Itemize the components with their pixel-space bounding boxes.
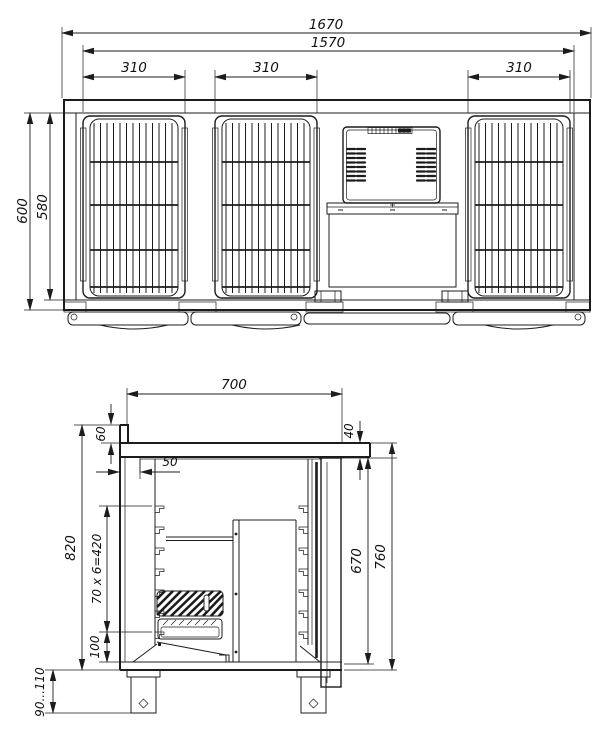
- side-section-view: [120, 425, 370, 713]
- shelf-slide: [166, 537, 233, 541]
- grille-door-left: [81, 116, 188, 298]
- dim-backsplash-height: 60: [94, 426, 108, 442]
- door-right-vertical-bars: [479, 123, 557, 293]
- dim-front-height: 760: [373, 544, 389, 570]
- louver-stack-right: [417, 149, 435, 181]
- dim-door-left: 310: [121, 60, 147, 76]
- dim-overall-width: 1670: [309, 17, 343, 33]
- door-middle-horizontal-wires: [222, 162, 310, 287]
- door-left-horizontal-wires: [90, 162, 178, 287]
- evaporator-fins: [157, 591, 223, 616]
- refrigerated-counter-drawing: 1670 1570 310 310 310 600 580: [0, 0, 605, 747]
- leg-left: [127, 670, 160, 713]
- interior-partition: [233, 520, 296, 662]
- compartment-tray: [327, 203, 458, 215]
- dim-door-height-side: 670: [349, 548, 365, 574]
- hinge-pin-middle: [291, 314, 297, 320]
- cabinet-section: [120, 457, 342, 670]
- door-left-vertical-bars: [94, 123, 172, 293]
- front-view: [64, 100, 590, 329]
- dim-door-right: 310: [506, 60, 532, 76]
- drain-line: [157, 642, 229, 662]
- leg-right: [297, 670, 330, 713]
- dim-overall-height: 600: [15, 198, 31, 224]
- machine-compartment: [315, 127, 468, 302]
- door-right-horizontal-wires: [475, 162, 563, 287]
- dim-leg-height: 90...110: [33, 667, 47, 717]
- grille-door-middle: [213, 116, 320, 298]
- louver-stack-left: [347, 149, 365, 181]
- dim-depth: 700: [221, 377, 247, 393]
- dim-back-wall-offset: 50: [162, 455, 178, 469]
- vent-slot-row: [368, 128, 412, 134]
- dim-body-height: 820: [63, 535, 79, 561]
- door-section: [317, 458, 344, 687]
- compartment-front-panel: [329, 214, 456, 287]
- hinge-pin-left: [71, 314, 77, 320]
- bottom-plinth: [68, 312, 585, 329]
- dim-door-middle: 310: [253, 60, 279, 76]
- condensate-pan-arcs: [100, 325, 553, 329]
- dim-bottom-offset: 100: [88, 635, 102, 658]
- dim-worktop-thickness: 40: [342, 423, 356, 439]
- dim-body-width: 1570: [311, 35, 345, 51]
- evaporator-slot: [204, 595, 209, 611]
- door-middle-vertical-bars: [226, 123, 304, 293]
- hinge-pin-right: [575, 314, 581, 320]
- dim-door-height-front: 580: [35, 194, 51, 220]
- evaporator-unit: [157, 591, 229, 662]
- grille-door-right: [466, 116, 573, 298]
- shelf-rails-right: [299, 506, 308, 639]
- drawing-page: 1670 1570 310 310 310 600 580: [0, 0, 605, 747]
- dim-shelf-rail-pitch: 70 x 6=420: [90, 533, 104, 604]
- side-view-dimensions: 700 60 40 50 820 70 x 6=420 100 670 760 …: [33, 377, 397, 717]
